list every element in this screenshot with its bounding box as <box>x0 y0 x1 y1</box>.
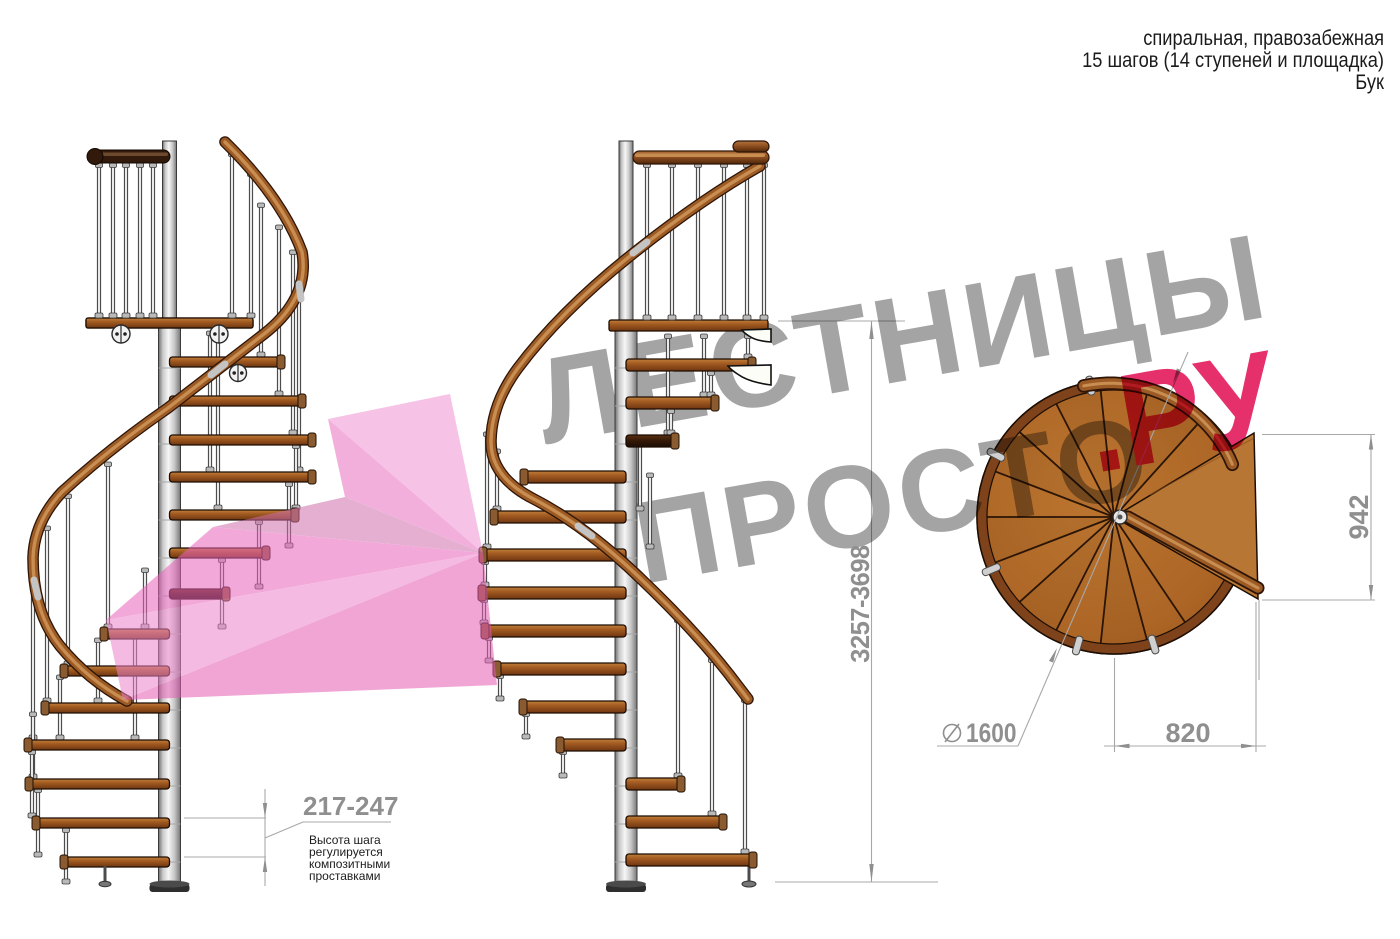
svg-text:1600: 1600 <box>966 718 1016 748</box>
svg-text:проставками: проставками <box>309 869 380 883</box>
svg-text:820: 820 <box>1165 718 1210 748</box>
svg-text:спиральная, правозабежная: спиральная, правозабежная <box>1143 27 1384 51</box>
svg-text:3257-3698: 3257-3698 <box>847 545 875 663</box>
svg-text:942: 942 <box>1344 494 1374 539</box>
svg-text:217-247: 217-247 <box>303 791 398 821</box>
svg-text:15 шагов (14 ступеней и площад: 15 шагов (14 ступеней и площадка) <box>1082 49 1384 73</box>
svg-text:Бук: Бук <box>1355 71 1384 95</box>
